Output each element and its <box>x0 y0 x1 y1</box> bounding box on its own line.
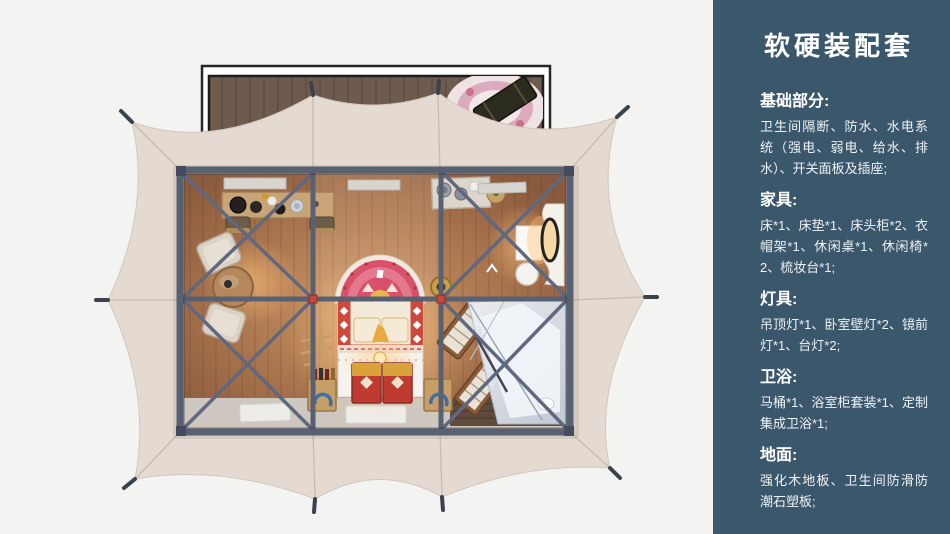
junction-marker <box>437 295 445 303</box>
section-floor-label: 地面: <box>760 445 928 467</box>
vanity-mirror <box>542 219 558 261</box>
painted-chest <box>352 363 381 403</box>
section-basic-body: 卫生间隔断、防水、水电系统（强电、弱电、给水、排水）、开关面板及插座; <box>760 116 928 179</box>
section-floor: 地面: 强化木地板、卫生间防滑防潮石塑板; <box>760 445 928 512</box>
hat <box>230 197 246 213</box>
spec-panel: 软硬装配套 基础部分: 卫生间隔断、防水、水电系统（强电、弱电、给水、排水）、开… <box>713 0 950 534</box>
hat <box>250 201 262 213</box>
nightstand <box>424 379 452 411</box>
section-lighting: 灯具: 吊顶灯*1、卧室壁灯*2、镜前灯*1、台灯*2; <box>760 289 928 356</box>
section-floor-body: 强化木地板、卫生间防滑防潮石塑板; <box>760 470 928 512</box>
slide: 软硬装配套 基础部分: 卫生间隔断、防水、水电系统（强电、弱电、给水、排水）、开… <box>0 0 950 534</box>
section-furniture: 家具: 床*1、床垫*1、床头柜*2、衣帽架*1、休闲桌*1、休闲椅*2、梳妆台… <box>760 190 928 278</box>
section-bath: 卫浴: 马桶*1、浴室柜套装*1、定制集成卫浴*1; <box>760 367 928 434</box>
painted-chest <box>383 363 412 403</box>
section-basic-label: 基础部分: <box>760 91 928 113</box>
section-bath-label: 卫浴: <box>760 367 928 389</box>
floor-mat <box>240 403 291 422</box>
panel-title: 软硬装配套 <box>750 26 928 63</box>
panel-sections: 基础部分: 卫生间隔断、防水、水电系统（强电、弱电、给水、排水）、开关面板及插座… <box>760 91 928 512</box>
floorplan-figure <box>0 0 713 534</box>
tent-floorplan-render <box>0 0 713 534</box>
section-lighting-label: 灯具: <box>760 289 928 311</box>
section-furniture-label: 家具: <box>760 190 928 212</box>
section-basic: 基础部分: 卫生间隔断、防水、水电系统（强电、弱电、给水、排水）、开关面板及插座… <box>760 91 928 179</box>
section-furniture-body: 床*1、床垫*1、床头柜*2、衣帽架*1、休闲桌*1、休闲椅*2、梳妆台*1; <box>760 215 928 278</box>
junction-marker <box>309 295 317 303</box>
section-lighting-body: 吊顶灯*1、卧室壁灯*2、镜前灯*1、台灯*2; <box>760 314 928 356</box>
section-bath-body: 马桶*1、浴室柜套装*1、定制集成卫浴*1; <box>760 392 928 434</box>
